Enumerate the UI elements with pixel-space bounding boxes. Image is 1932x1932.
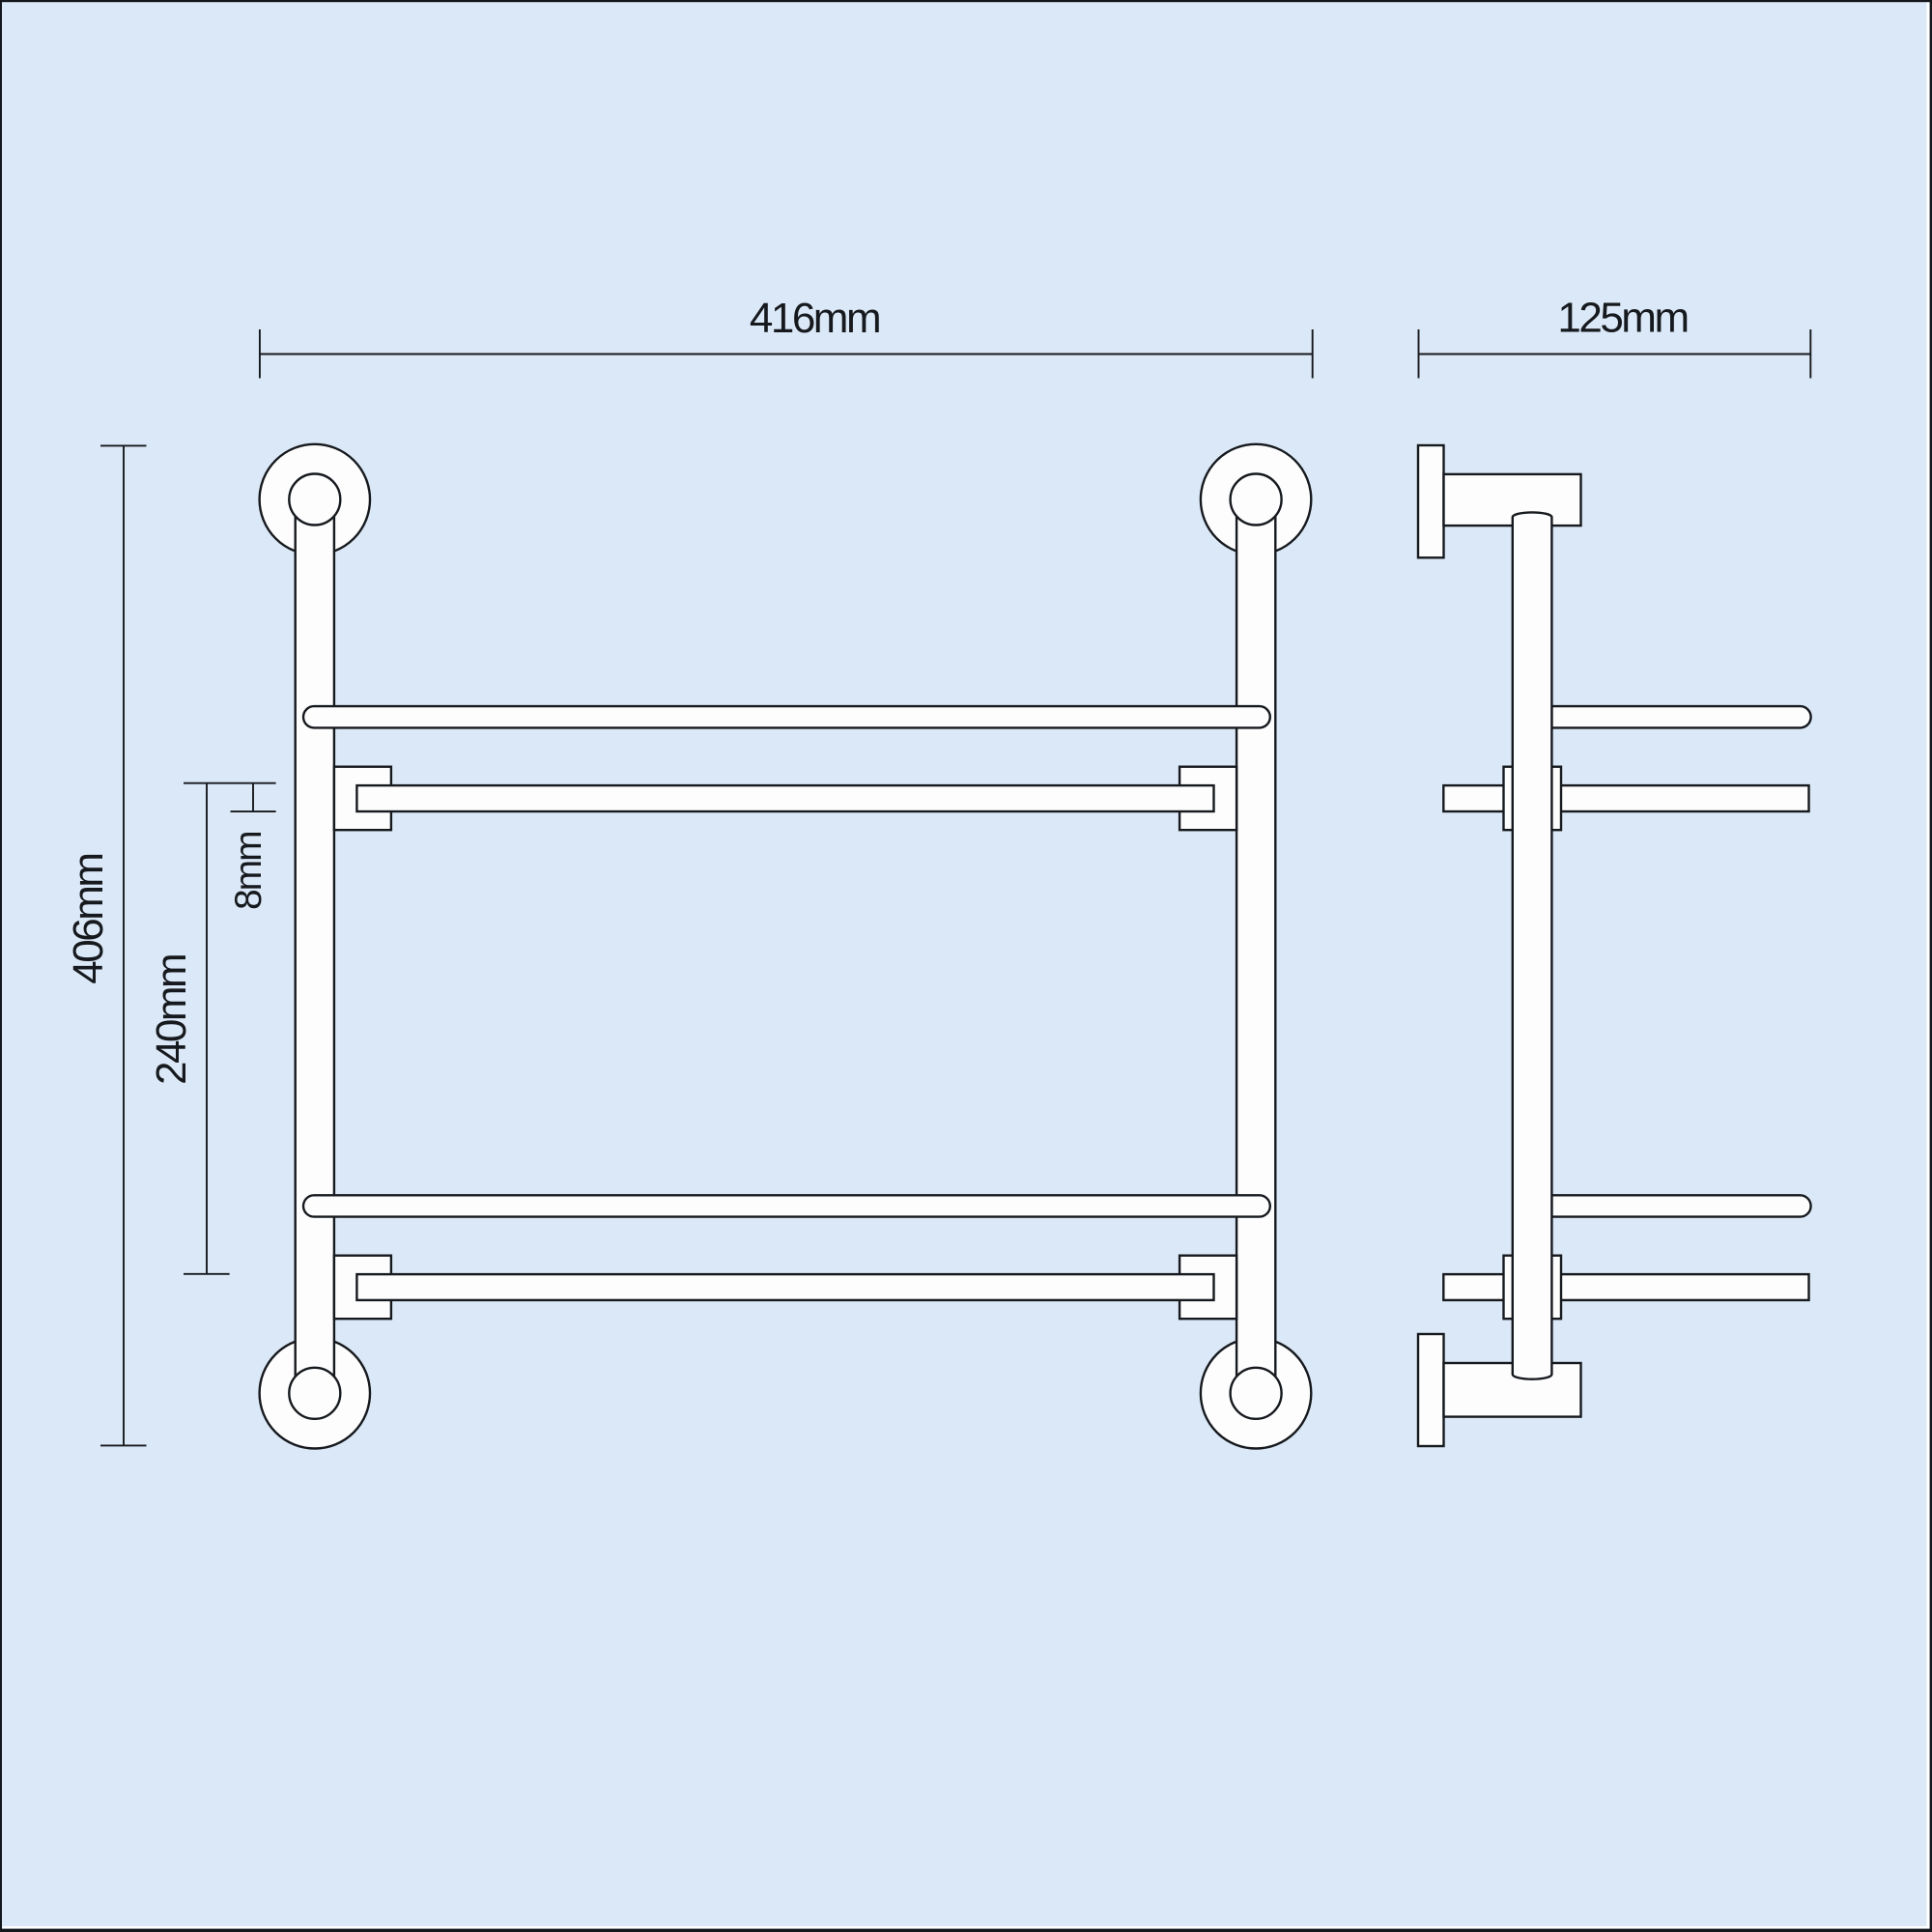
svg-text:416mm: 416mm: [750, 295, 879, 342]
svg-text:240mm: 240mm: [148, 955, 195, 1085]
svg-text:8mm: 8mm: [228, 832, 270, 910]
svg-text:125mm: 125mm: [1557, 295, 1687, 342]
svg-text:406mm: 406mm: [65, 854, 112, 983]
